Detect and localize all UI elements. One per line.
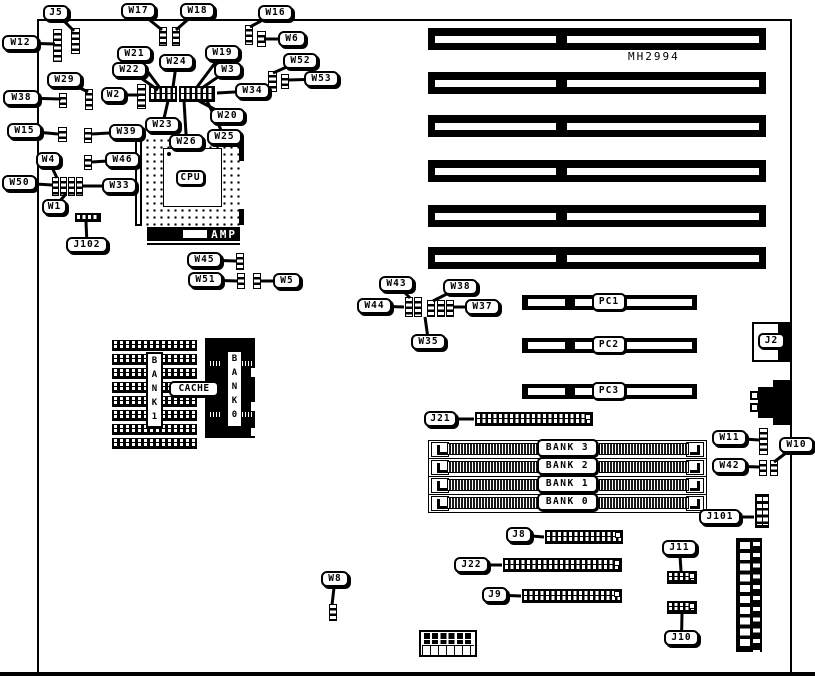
callout-w25: W25 [207,129,242,145]
callout-j21: J21 [424,411,457,427]
callout-w12: W12 [2,35,39,51]
motherboard-diagram: MH2994 CPU AMP BANK1 CACHE BANK0 J2 [0,0,815,680]
callout-w29: W29 [47,72,82,88]
callout-w22: W22 [112,62,147,78]
j2-label: J2 [758,333,785,349]
callout-w46: W46 [105,152,140,168]
callout-w39: W39 [109,124,144,140]
cache-bank0-label: BANK0 [227,351,242,427]
callout-w17: W17 [121,3,156,19]
cache-label: CACHE [169,381,219,397]
callout-w35: W35 [411,334,446,350]
callout-w6: W6 [278,31,306,47]
cpu-label: CPU [176,170,205,186]
callout-w38b: W38 [443,279,478,295]
callout-j22: J22 [454,557,489,573]
callout-j8: J8 [506,527,532,543]
callout-w4: W4 [36,152,61,168]
callout-w19: W19 [205,45,240,61]
callout-w37: W37 [465,299,500,315]
callout-w42: W42 [712,458,747,474]
callout-w44: W44 [357,298,392,314]
callout-w38: W38 [3,90,40,106]
callout-w8: W8 [321,571,349,587]
callout-w11: W11 [712,430,747,446]
callout-w20: W20 [210,108,245,124]
callout-j5: J5 [43,5,69,21]
callout-w16: W16 [258,5,293,21]
callout-w15: W15 [7,123,42,139]
callout-j9: J9 [482,587,508,603]
cache-bank1-label: BANK1 [146,352,163,428]
callout-j10: J10 [664,630,699,646]
callout-w26: W26 [169,134,204,150]
callout-w18: W18 [180,3,215,19]
callout-w51: W51 [188,272,223,288]
callout-j102: J102 [66,237,108,253]
callout-w2: W2 [101,87,126,103]
callout-w45: W45 [187,252,222,268]
callout-w43: W43 [379,276,414,292]
callout-w3: W3 [214,62,242,78]
callout-w23: W23 [145,117,180,133]
callout-w33: W33 [102,178,137,194]
callout-w24: W24 [159,54,194,70]
callout-j101: J101 [699,509,741,525]
callout-w50: W50 [2,175,37,191]
callout-w52: W52 [283,53,318,69]
callout-w34: W34 [235,83,270,99]
callout-w21: W21 [117,46,152,62]
callout-w53: W53 [304,71,339,87]
callout-w10: W10 [779,437,814,453]
callout-j11: J11 [662,540,697,556]
callout-w5: W5 [273,273,301,289]
callout-w1: W1 [42,199,67,215]
